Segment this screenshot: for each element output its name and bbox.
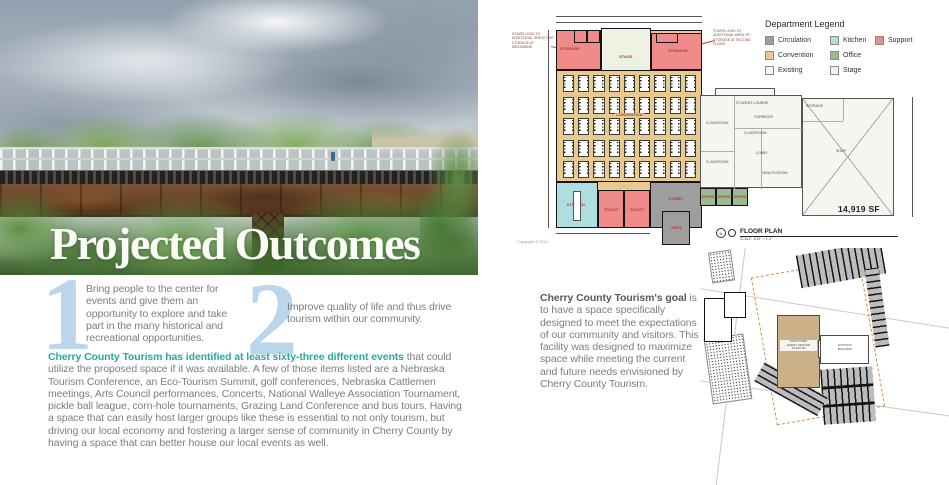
goal-lead: Cherry County Tourism's goal: [540, 292, 687, 304]
room-kitchen: KITCHEN: [556, 182, 598, 228]
dimension-line: [556, 16, 702, 17]
north-arrow-icon: N: [716, 228, 726, 238]
room-label: CLASSROOM: [706, 122, 728, 126]
copyright: Copyright © 2021: [517, 239, 548, 244]
body-paragraph: Cherry County Tourism has identified at …: [48, 351, 470, 449]
banquet-table: [685, 75, 696, 92]
brochure-spread: Projected Outcomes 1 Bring people to the…: [0, 0, 949, 485]
room-label: STUDENT LOUNGE: [736, 102, 768, 106]
legend-label: Convention: [778, 52, 813, 59]
banquet-table: [670, 75, 681, 92]
room-label: CLASSROOM: [706, 161, 728, 165]
banquet-table: [654, 161, 665, 178]
banquet-table: [670, 118, 681, 135]
banquet-table: [624, 75, 635, 92]
right-tree: [420, 118, 478, 275]
legend-item: Circulation: [765, 36, 811, 45]
banquet-table: [624, 140, 635, 157]
room-toilet-a: TOILET: [598, 190, 624, 228]
page-title: Projected Outcomes: [50, 217, 419, 270]
legend-label: Kitchen: [843, 37, 866, 44]
drawing-scale: SCALE: 3/32" = 1'-0": [740, 237, 772, 241]
partition: [701, 151, 734, 152]
banquet-table: [654, 118, 665, 135]
banquet-table: [563, 161, 574, 178]
existing-site-building: EXISTINGBUILDING: [820, 335, 869, 364]
banquet-table: [670, 161, 681, 178]
legend-swatch: [765, 36, 774, 45]
banquet-table: [654, 97, 665, 114]
banquet-table: [563, 118, 574, 135]
legend-swatch: [765, 51, 774, 60]
banquet-table: [670, 97, 681, 114]
partition: [734, 128, 803, 129]
banquet-table: [639, 75, 650, 92]
room-label: CONVENTION: [615, 113, 644, 118]
legend-item: Kitchen: [830, 36, 866, 45]
banquet-table: [624, 161, 635, 178]
person-on-bridge: [331, 152, 335, 161]
banquet-table: [578, 161, 589, 178]
room-label: CLASSROOM: [744, 132, 766, 136]
legend-label: Stage: [843, 67, 861, 74]
legend-swatch: [875, 36, 884, 45]
legend-item: Office: [830, 51, 861, 60]
office-row: OFFICEOFFICEOFFICE: [700, 188, 748, 206]
goal-paragraph: Cherry County Tourism's goal is to have …: [540, 292, 704, 390]
room-office: OFFICE: [700, 188, 716, 206]
room-label: LOBBY: [756, 152, 768, 156]
kitchen-counter: [573, 191, 581, 221]
banquet-table: [593, 118, 604, 135]
room-label: CORRIDOR: [754, 116, 773, 120]
banquet-table: [578, 140, 589, 157]
banquet-table: [654, 140, 665, 157]
existing-wing-b: [802, 98, 894, 216]
legend-swatch: [830, 66, 839, 75]
room-label: LOBBY: [669, 197, 683, 202]
banquet-table: [609, 118, 620, 135]
banquet-table: [609, 97, 620, 114]
proposed-building: PROPOSEDEVENT CENTER14,919 SF: [777, 315, 820, 388]
banquet-table: [563, 75, 574, 92]
scale-bubble-icon: [728, 229, 736, 237]
banquet-table: [609, 161, 620, 178]
room-small-1: [574, 30, 587, 43]
dimension-line: [912, 97, 913, 217]
room-label: VEST.: [671, 226, 682, 231]
legend-label: Circulation: [778, 37, 811, 44]
banquet-table: [563, 97, 574, 114]
room-label: TOILET: [630, 208, 644, 213]
banquet-table: [609, 75, 620, 92]
paragraph-body: that could utilize the proposed space if…: [48, 351, 462, 449]
goal-body: is to have a space specifically designed…: [540, 292, 699, 390]
site-plan: PROPOSEDEVENT CENTER14,919 SF EXISTINGBU…: [700, 248, 949, 485]
banquet-table: [685, 161, 696, 178]
room-office: OFFICE: [732, 188, 748, 206]
parking-lot-south: [820, 366, 876, 424]
room-label: SHOP: [836, 150, 846, 154]
annotation-right: STAIRS LEAD TO ADDITIONAL AREA OF STORAG…: [713, 29, 755, 47]
room-label: STORAGE: [806, 105, 823, 109]
person-head: [332, 148, 335, 151]
banquet-table: [639, 161, 650, 178]
room-convention: CONVENTION: [556, 70, 702, 182]
legend-title: Department Legend: [765, 19, 845, 29]
bridge-deck: [0, 170, 478, 185]
banquet-table: [593, 97, 604, 114]
room-label: HEALTH ROOM: [762, 172, 787, 176]
legend-item: Support: [875, 36, 913, 45]
partition: [803, 121, 843, 122]
banquet-table: [563, 140, 574, 157]
room-office: OFFICE: [716, 188, 732, 206]
legend-items: CirculationConventionExistingKitchenOffi…: [765, 36, 949, 86]
legend-label: Office: [843, 52, 861, 59]
banquet-table: [639, 97, 650, 114]
hero-photo: Projected Outcomes: [0, 0, 478, 275]
banquet-table: [685, 118, 696, 135]
banquet-table: [685, 140, 696, 157]
room-label: STORAGE: [560, 47, 580, 52]
floor-plan: Department Legend CirculationConventionE…: [510, 5, 949, 250]
partition: [843, 99, 844, 121]
vegetation-patch: [708, 250, 735, 284]
banquet-table: [624, 118, 635, 135]
banquet-table: [639, 118, 650, 135]
legend-label: Existing: [778, 67, 803, 74]
banquet-table: [593, 75, 604, 92]
adjacent-building-outline: [724, 292, 746, 318]
annotation-left: STAIRS LEAD TO ADDITIONAL SPACE FOR STOR…: [512, 32, 554, 50]
room-vestibule: VEST.: [662, 211, 690, 245]
paragraph-lead: Cherry County Tourism has identified at …: [48, 351, 404, 363]
legend-label: Support: [888, 37, 913, 44]
banquet-table: [578, 75, 589, 92]
outcome-text-1: Bring people to the center for events an…: [86, 283, 242, 344]
convention-tables: [563, 75, 696, 178]
legend-item: Stage: [830, 66, 861, 75]
partition: [761, 128, 762, 189]
banquet-table: [609, 140, 620, 157]
banquet-table: [593, 161, 604, 178]
existing-building-label: EXISTINGBUILDING: [825, 344, 865, 351]
legend-swatch: [765, 66, 774, 75]
area-label: 14,919 SF: [838, 204, 880, 214]
partition: [734, 96, 735, 189]
legend-swatch: [830, 36, 839, 45]
legend-item: Existing: [765, 66, 803, 75]
dimension-line: [556, 233, 650, 234]
room-label: STAGE: [619, 55, 632, 60]
drawing-caption: FLOOR PLAN: [740, 228, 898, 237]
banquet-table: [578, 118, 589, 135]
room-small-3: [656, 33, 678, 43]
room-toilet-b: TOILET: [624, 190, 650, 228]
bridge-railing: [0, 147, 478, 171]
banquet-table: [578, 97, 589, 114]
dimension-line: [556, 22, 702, 23]
banquet-table: [685, 97, 696, 114]
banquet-table: [654, 75, 665, 92]
legend-item: Convention: [765, 51, 813, 60]
proposed-building-label: PROPOSEDEVENT CENTER14,919 SF: [780, 340, 817, 351]
banquet-table: [639, 140, 650, 157]
banquet-table: [624, 97, 635, 114]
vegetation-patch: [704, 334, 753, 405]
legend-swatch: [830, 51, 839, 60]
room-label: STORAGE: [668, 49, 688, 54]
banquet-table: [593, 140, 604, 157]
outcome-text-2: Improve quality of life and thus drive t…: [287, 301, 457, 326]
room-label: TOILET: [604, 208, 618, 213]
dimension-line: [548, 30, 549, 228]
room-small-2: [587, 30, 600, 43]
banquet-table: [670, 140, 681, 157]
